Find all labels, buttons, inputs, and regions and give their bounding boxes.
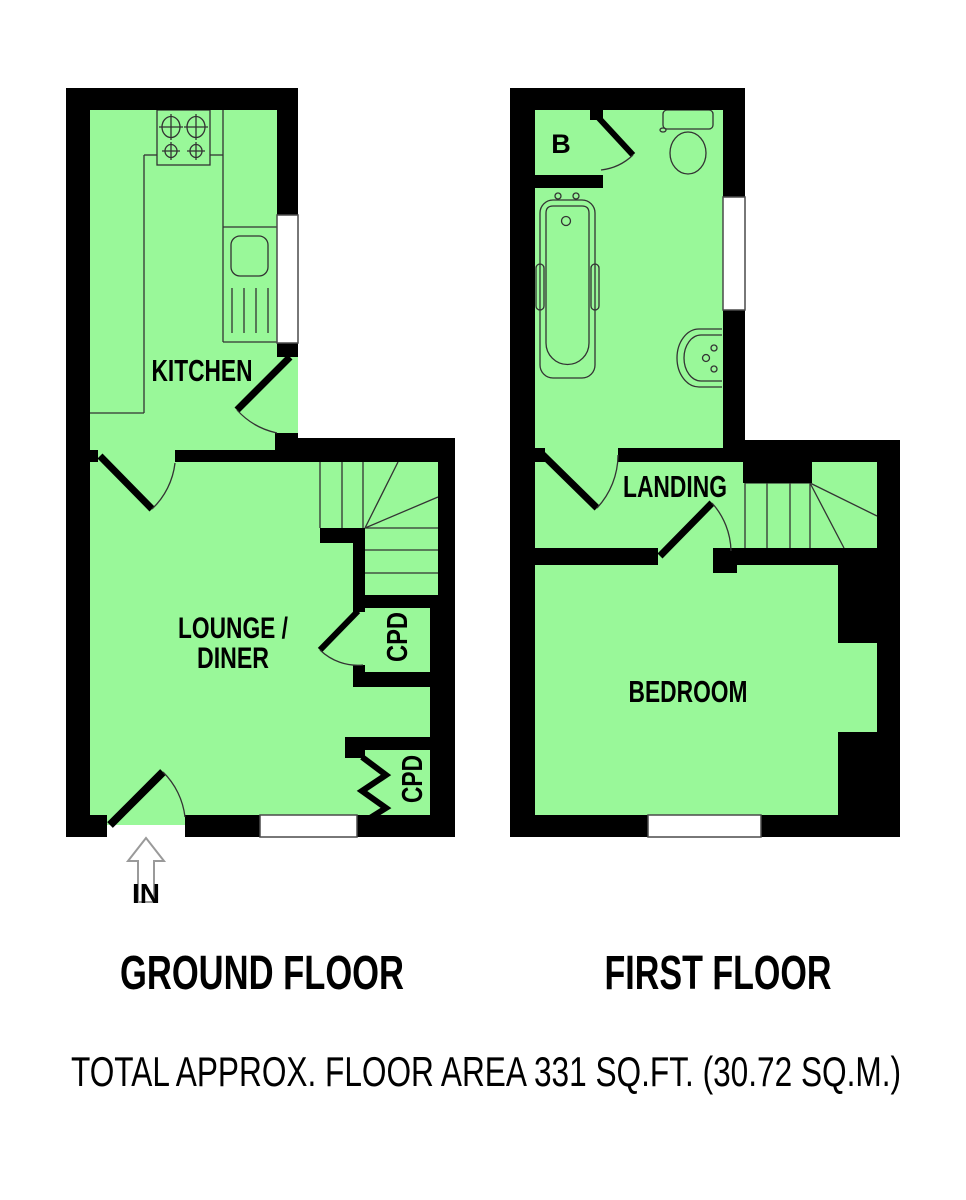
- wall: [298, 438, 455, 462]
- cupboard-lower-label: CPD: [397, 755, 429, 803]
- wall: [430, 600, 455, 837]
- floorplan: KITCHEN LOUNGE / DINER CPD CPD IN GROUND…: [0, 0, 966, 1200]
- wall: [535, 175, 603, 188]
- wall: [438, 438, 455, 608]
- wall: [353, 595, 365, 612]
- lounge-label-line1: LOUNGE /: [178, 612, 288, 645]
- wall: [737, 440, 900, 462]
- wall: [737, 548, 877, 565]
- ground-floor-area: [90, 110, 438, 825]
- wall: [838, 732, 900, 815]
- wall: [743, 462, 812, 483]
- lounge-label-line2: DINER: [197, 642, 269, 675]
- bedroom-label: BEDROOM: [629, 674, 748, 709]
- cupboard-upper-label: CPD: [382, 612, 414, 662]
- wall: [345, 750, 365, 758]
- first-floor-area: [535, 110, 877, 815]
- wall: [838, 565, 900, 643]
- wall: [713, 548, 737, 573]
- wall: [723, 310, 745, 448]
- ground-floor-title: GROUND FLOOR: [120, 947, 404, 1000]
- ground-floor-plan: KITCHEN LOUNGE / DINER CPD CPD IN GROUND…: [66, 88, 455, 1000]
- wall: [353, 595, 438, 608]
- window: [648, 815, 761, 837]
- wall: [66, 815, 107, 837]
- wall: [353, 672, 430, 687]
- wall: [535, 548, 658, 565]
- wall: [510, 88, 535, 837]
- wall: [277, 110, 298, 215]
- wall: [723, 110, 745, 197]
- first-floor-title: FIRST FLOOR: [605, 947, 832, 1000]
- wall: [510, 88, 745, 110]
- kitchen-label: KITCHEN: [152, 353, 253, 388]
- wall: [345, 737, 430, 750]
- wall: [90, 450, 98, 462]
- total-area-label: TOTAL APPROX. FLOOR AREA 331 SQ.FT. (30.…: [71, 1048, 901, 1095]
- window: [260, 815, 357, 837]
- boiler-cupboard-label: B: [551, 129, 571, 159]
- window: [277, 215, 298, 343]
- first-floor-plan: B LANDING BEDROOM FIRST FLOOR: [510, 88, 900, 1000]
- window: [723, 197, 745, 310]
- wall: [175, 450, 298, 462]
- wall: [618, 448, 745, 462]
- wall: [66, 88, 90, 817]
- landing-label: LANDING: [623, 469, 727, 504]
- entrance-in-label: IN: [132, 878, 160, 909]
- wall: [66, 88, 298, 110]
- floorplan-page: KITCHEN LOUNGE / DINER CPD CPD IN GROUND…: [0, 0, 966, 1200]
